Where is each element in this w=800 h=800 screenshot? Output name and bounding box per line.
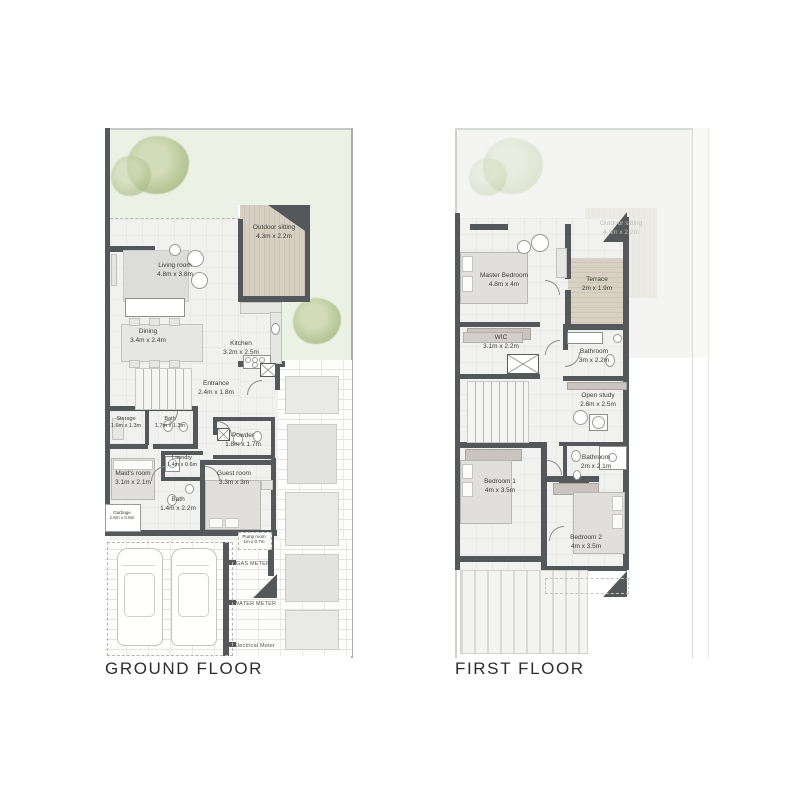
- room-name: Powder: [232, 432, 254, 439]
- room-label-bath: Bath 1.7m x 1.3m: [148, 416, 192, 431]
- tv-unit: [111, 254, 117, 286]
- wall: [200, 460, 271, 465]
- room-dims: 4.3m x 2.2m: [240, 233, 308, 242]
- wall: [213, 417, 275, 421]
- room-label-terrace: Terrace 2m x 1.9m: [571, 276, 623, 294]
- room-label-laundry: Laundry 1.4m x 0.6m: [162, 455, 202, 470]
- planter: [285, 610, 339, 650]
- room-name: Bathroom: [580, 348, 608, 355]
- room-name: Bath: [164, 416, 175, 422]
- dashed-overhang: [545, 578, 629, 594]
- room-name: Garbage: [113, 510, 131, 515]
- armchair: [531, 234, 549, 252]
- room-dims: 1.4m x 0.6m: [162, 462, 202, 469]
- room-name: Bedroom 2: [570, 534, 602, 541]
- wall: [271, 417, 275, 459]
- room-label-entrance: Entrance 2.4m x 1.8m: [185, 380, 247, 398]
- room-label-maids-room: Maid's room 3.1m x 2.1m: [106, 470, 160, 488]
- wall: [460, 374, 540, 379]
- room-label-kitchen: Kitchen 3.2m x 2.5m: [213, 340, 269, 358]
- room-dims: 1.6m x 0.5m: [106, 515, 138, 520]
- room-dims: 2.6m x 2.5m: [567, 401, 629, 410]
- room-label-dining: Dining 3.4m x 2.4m: [119, 328, 177, 346]
- stairs: [135, 368, 192, 410]
- pillow: [209, 518, 223, 528]
- desk-chair: [573, 410, 588, 425]
- room-name: Entrance: [203, 380, 229, 387]
- room-dims: 1.6m x 1.3m: [106, 423, 146, 430]
- desk-chair: [592, 416, 605, 429]
- stairs: [467, 381, 529, 443]
- room-label-outdoor-sitting: Outdoor sitting 4.3m x 2.2m: [240, 224, 308, 242]
- garden-area: [310, 205, 353, 300]
- wall: [470, 224, 508, 230]
- room-name: Outdoor sitting: [253, 224, 295, 231]
- sofa: [125, 298, 185, 317]
- shaft: [507, 354, 539, 374]
- room-name: WIC: [495, 334, 508, 341]
- vanity: [567, 332, 603, 344]
- sink: [185, 484, 194, 494]
- room-label-pump-room: Pump room 1m x 0.7m: [240, 534, 268, 545]
- wall: [565, 290, 571, 326]
- pillow: [462, 464, 473, 479]
- room-label-living: Living room 4.8m x 3.8m: [140, 262, 210, 280]
- room-label-open-study: Open study 2.6m x 2.5m: [567, 392, 629, 410]
- room-name: Kitchen: [230, 340, 252, 347]
- car-icon: [117, 548, 163, 646]
- room-dims: 4m x 3.5m: [551, 543, 621, 552]
- room-name: Laundry: [172, 455, 192, 461]
- chair: [169, 360, 180, 368]
- wall: [460, 556, 542, 562]
- room-dims: 3m x 2.2m: [565, 357, 623, 366]
- car-cabin: [124, 573, 155, 617]
- room-dims: 1.4m x 2.2m: [155, 505, 201, 514]
- room-name: Master Bedroom: [480, 272, 528, 279]
- car-icon: [171, 548, 217, 646]
- planter: [287, 424, 337, 484]
- wall: [563, 376, 629, 381]
- ground-floor-plan: Outdoor sitting 4.3m x 2.2m Living room …: [105, 128, 353, 658]
- room-label-bathroom2: Bathroom 2m x 2.1m: [567, 454, 625, 472]
- room-dims: 4m x 3.5m: [469, 487, 531, 496]
- room-label-storage: Storage 1.6m x 1.3m: [106, 416, 146, 431]
- side-table: [517, 240, 531, 254]
- wall: [460, 322, 540, 327]
- room-dims: 3.2m x 2.5m: [213, 349, 269, 358]
- planter: [285, 376, 339, 414]
- room-label-wic: WIC 3.1m x 2.2m: [471, 334, 531, 352]
- room-dims: 3.1m x 2.1m: [106, 479, 160, 488]
- room-dims: 2m x 2.1m: [567, 463, 625, 472]
- chair: [129, 360, 140, 368]
- chair: [169, 318, 180, 326]
- room-name: Bedroom 1: [484, 478, 516, 485]
- wall: [193, 406, 198, 449]
- room-dims: 4.8m x 3.8m: [140, 271, 210, 280]
- room-name: Bathroom: [582, 454, 610, 461]
- pillow: [612, 496, 623, 511]
- kitchen-counter: [270, 312, 282, 364]
- pillow: [462, 256, 473, 272]
- room-label-powder: Powder 1.8m x 1.7m: [217, 432, 269, 450]
- patio-dashed-line: [110, 218, 240, 219]
- wall: [271, 458, 276, 536]
- room-label-bedroom1: Bedroom 1 4m x 3.5m: [469, 478, 531, 496]
- planter: [285, 554, 339, 602]
- room-label-guest-room: Guest room 3.3m x 3m: [203, 470, 265, 488]
- room-label-garbage: Garbage 1.6m x 0.5m: [106, 510, 138, 521]
- burner: [245, 357, 251, 363]
- electrical-meter-label: Electrical Meter: [234, 643, 275, 649]
- room-label-bath2: Bath 1.4m x 2.2m: [155, 496, 201, 514]
- room-dims: 2m x 1.9m: [571, 285, 623, 294]
- ground-floor-title: GROUND FLOOR: [105, 659, 263, 679]
- room-dims: 4.3m x 2.2m: [587, 229, 655, 238]
- plot-boundary-right: [692, 128, 693, 658]
- wall: [161, 477, 203, 481]
- room-dims: 3.1m x 2.2m: [471, 343, 531, 352]
- room-label-bedroom2: Bedroom 2 4m x 3.5m: [551, 534, 621, 552]
- wall: [153, 444, 197, 449]
- room-name: Storage: [116, 416, 135, 422]
- chair: [149, 318, 160, 326]
- room-dims: 1m x 0.7m: [240, 539, 268, 544]
- room-name: Living room: [158, 262, 192, 269]
- room-dims: 4.8m x 4m: [471, 281, 537, 290]
- wall: [110, 444, 148, 449]
- side-table: [169, 244, 181, 256]
- room-name: Maid's room: [115, 470, 150, 477]
- wall: [213, 455, 275, 459]
- pillow: [225, 518, 239, 528]
- planter: [285, 492, 339, 546]
- pillow: [113, 460, 153, 470]
- water-meter-label: WATER METER: [234, 601, 276, 607]
- chair: [129, 318, 140, 326]
- room-name: Guest room: [217, 470, 251, 477]
- room-dims: 3.3m x 3m: [203, 479, 265, 488]
- pillow: [612, 514, 623, 529]
- car-hood: [122, 555, 155, 566]
- room-dims: 1.8m x 1.7m: [217, 441, 269, 450]
- room-name: Open study: [581, 392, 614, 399]
- room-dims: 1.7m x 1.3m: [148, 423, 192, 430]
- garden-area: [105, 205, 238, 219]
- first-floor-plan: Outdoor sitting 4.3m x 2.2m Master Bedro…: [455, 128, 710, 658]
- room-dims: 2.4m x 1.8m: [185, 389, 247, 398]
- ghost-plot-area: [693, 128, 709, 358]
- room-label-bathroom-master: Bathroom 3m x 2.2m: [565, 348, 623, 366]
- sink: [613, 334, 622, 343]
- room-name: Dining: [139, 328, 157, 335]
- burner: [252, 362, 258, 368]
- room-name: Bath: [171, 496, 184, 503]
- shelf: [567, 382, 627, 390]
- chair: [149, 360, 160, 368]
- room-dims: 3.4m x 2.4m: [119, 337, 177, 346]
- room-name: Outdoor sitting: [600, 220, 642, 227]
- kitchen-sink: [271, 323, 280, 335]
- room-label-outdoor-ghost: Outdoor sitting 4.3m x 2.2m: [587, 220, 655, 238]
- room-label-master-bedroom: Master Bedroom 4.8m x 4m: [471, 272, 537, 290]
- wall: [563, 324, 629, 330]
- dresser: [556, 248, 567, 278]
- car-hood: [176, 555, 209, 566]
- plot-boundary-outer: [708, 128, 709, 658]
- plot-boundary-top: [455, 128, 693, 130]
- first-floor-title: FIRST FLOOR: [455, 659, 585, 679]
- plot-boundary-top: [110, 128, 352, 130]
- car-cabin: [178, 573, 209, 617]
- gas-meter-label: GAS METER: [236, 561, 270, 567]
- fridge: [260, 363, 276, 377]
- room-name: Pump room: [242, 534, 265, 539]
- room-name: Terrace: [586, 276, 608, 283]
